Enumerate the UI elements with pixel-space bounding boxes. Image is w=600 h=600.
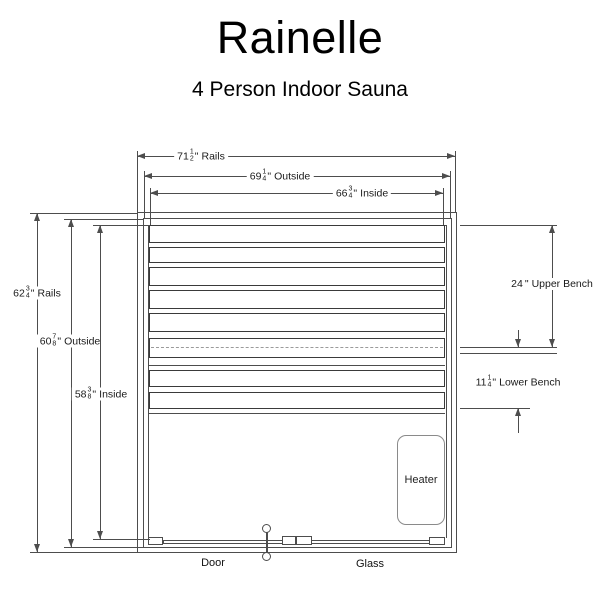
extension-line: [460, 353, 557, 354]
bench-board: [149, 247, 445, 263]
dim-label-rails-width: 7112"Rails: [174, 150, 228, 163]
wall-post: [282, 536, 296, 545]
bench-board: [149, 313, 445, 332]
fraction: 78: [52, 335, 56, 348]
arrow-right: [442, 173, 450, 179]
wall-post: [296, 536, 312, 545]
heater-box: Heater: [397, 435, 445, 525]
arrow-up: [34, 213, 40, 221]
fraction: 14: [487, 376, 491, 389]
dim-label-inside-height: 5838"Inside: [72, 388, 130, 401]
hidden-edge-dashed-line: [151, 347, 443, 348]
arrow-right: [447, 153, 455, 159]
arrow-left: [144, 173, 152, 179]
dim-line-rails-height: [37, 213, 38, 552]
extension-line: [93, 539, 150, 540]
wall-post: [148, 537, 163, 545]
door-handle-stem: [266, 531, 268, 554]
bench-board: [149, 225, 445, 243]
dim-label-outside-width: 6914"Outside: [247, 170, 314, 183]
arrow-right: [435, 190, 443, 196]
arrow-up: [68, 219, 74, 227]
heater-label: Heater: [404, 474, 437, 486]
glass-label: Glass: [356, 558, 384, 570]
page-subtitle: 4 Person Indoor Sauna: [0, 78, 600, 102]
fraction: 34: [26, 287, 30, 300]
dim-label-outside-height: 6078"Outside: [37, 335, 104, 348]
fraction: 12: [190, 150, 194, 163]
arrow-down: [549, 339, 555, 347]
door-handle-knob-outer: [262, 552, 271, 561]
arrow-down: [515, 339, 521, 347]
arrow-up: [549, 225, 555, 233]
extension-line: [137, 151, 138, 212]
extension-line: [455, 151, 456, 212]
extension-line: [443, 188, 444, 225]
dim-label-upper-bench: 24"Upper Bench: [508, 278, 596, 290]
extension-line: [30, 213, 137, 214]
arrow-up: [97, 225, 103, 233]
dim-line-outside-height: [71, 219, 72, 547]
arrow-down: [68, 539, 74, 547]
sauna-spec-diagram: Rainelle 4 Person Indoor Sauna Heater Do…: [0, 0, 600, 600]
fraction: 14: [262, 170, 266, 183]
dim-label-inside-width: 6634"Inside: [333, 187, 391, 200]
fraction: 38: [88, 388, 92, 401]
extension-line: [93, 225, 150, 226]
extension-line: [460, 225, 557, 226]
bench-board: [149, 370, 445, 387]
extension-line: [30, 552, 137, 553]
dim-label-rails-height: 6234"Rails: [10, 287, 64, 300]
bench-board-upper-bench-front: [149, 338, 445, 358]
lower-bench-front-line: [149, 413, 445, 414]
arrow-down: [34, 544, 40, 552]
door-handle-knob-inner: [262, 524, 271, 533]
extension-line: [144, 171, 145, 218]
dim-label-lower-bench: 1114"Lower Bench: [473, 376, 564, 389]
page-title: Rainelle: [0, 12, 600, 64]
arrow-down: [97, 531, 103, 539]
bench-board: [149, 267, 445, 286]
extension-line: [150, 188, 151, 225]
arrow-up: [515, 408, 521, 416]
wall-post: [429, 537, 445, 545]
extension-line: [460, 347, 557, 348]
arrow-left: [137, 153, 145, 159]
door-label: Door: [201, 557, 225, 569]
dim-line-inside-width: [150, 193, 443, 194]
extension-line: [64, 219, 143, 220]
arrow-left: [150, 190, 158, 196]
extension-line: [450, 171, 451, 218]
bench-divider-line: [149, 365, 445, 366]
bench-board: [149, 290, 445, 309]
fraction: 34: [349, 187, 353, 200]
extension-line: [64, 547, 143, 548]
bench-board: [149, 392, 445, 409]
dim-line-inside-height: [100, 225, 101, 539]
